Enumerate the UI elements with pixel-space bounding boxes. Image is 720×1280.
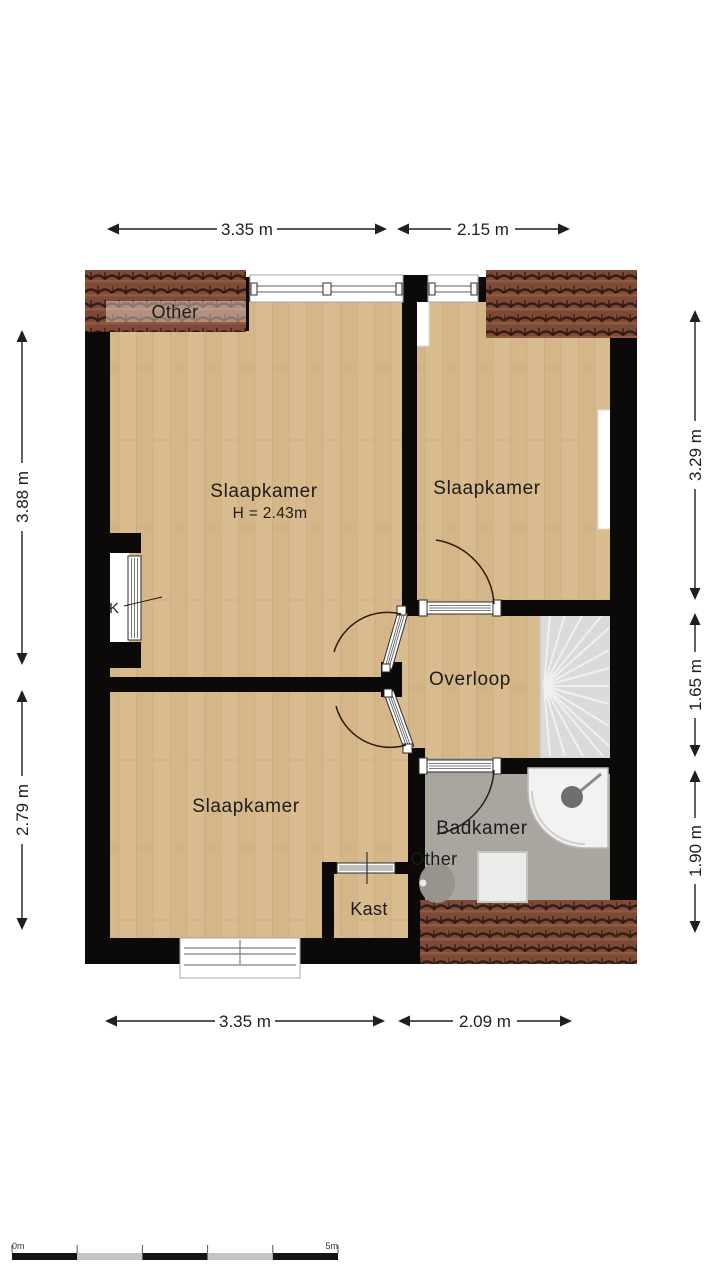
bath-mat: [478, 852, 527, 902]
dimension-left-1: 3.88 m: [13, 330, 32, 665]
svg-text:2.15 m: 2.15 m: [457, 220, 509, 239]
room-label-slaapkamer-main: Slaapkamer: [210, 481, 317, 502]
window-top-left: [250, 275, 403, 302]
room-label-overloop: Overloop: [429, 669, 511, 690]
dimension-bottom-1: 3.35 m: [105, 1012, 385, 1031]
shower-drain-icon: [561, 786, 583, 808]
room-label-other-badkamer: Other: [410, 849, 457, 869]
room-label-other-top: Other: [151, 302, 198, 322]
svg-text:3.35 m: 3.35 m: [219, 1012, 271, 1031]
dimension-right-1: 3.29 m: [686, 310, 705, 600]
svg-text:1.90 m: 1.90 m: [686, 825, 705, 877]
scale-bar: 0m 5m: [12, 1241, 338, 1260]
svg-text:3.29 m: 3.29 m: [686, 429, 705, 481]
svg-text:3.88 m: 3.88 m: [13, 471, 32, 523]
room-label-kast: Kast: [350, 899, 388, 919]
svg-text:2.79 m: 2.79 m: [13, 784, 32, 836]
room-label-slaapkamer-bottom: Slaapkamer: [192, 796, 299, 817]
dimension-top-1: 3.35 m: [107, 220, 387, 239]
svg-text:3.35 m: 3.35 m: [221, 220, 273, 239]
room-height-label: H = 2.43m: [233, 505, 308, 522]
dimension-left-2: 2.79 m: [13, 690, 32, 930]
room-label-slaapkamer-right: Slaapkamer: [433, 478, 540, 499]
dimension-bottom-2: 2.09 m: [398, 1012, 572, 1031]
dimension-right-3: 1.90 m: [686, 770, 705, 933]
floorplan-svg: Other Slaapkamer H = 2.43m Slaapkamer K …: [0, 0, 720, 1280]
window-bottom: [180, 938, 300, 978]
room-label-badkamer: Badkamer: [436, 818, 527, 839]
scale-end-label: 5m: [325, 1241, 338, 1251]
wall-recess-top: [416, 298, 429, 346]
dimension-right-2: 1.65 m: [686, 613, 705, 757]
svg-text:2.09 m: 2.09 m: [459, 1012, 511, 1031]
svg-text:1.65 m: 1.65 m: [686, 659, 705, 711]
room-label-k-closet: K: [109, 600, 119, 617]
floorplan-page: Other Slaapkamer H = 2.43m Slaapkamer K …: [0, 0, 720, 1280]
scale-start-label: 0m: [12, 1241, 25, 1251]
dimension-top-2: 2.15 m: [397, 220, 570, 239]
window-top-right: [428, 275, 478, 302]
